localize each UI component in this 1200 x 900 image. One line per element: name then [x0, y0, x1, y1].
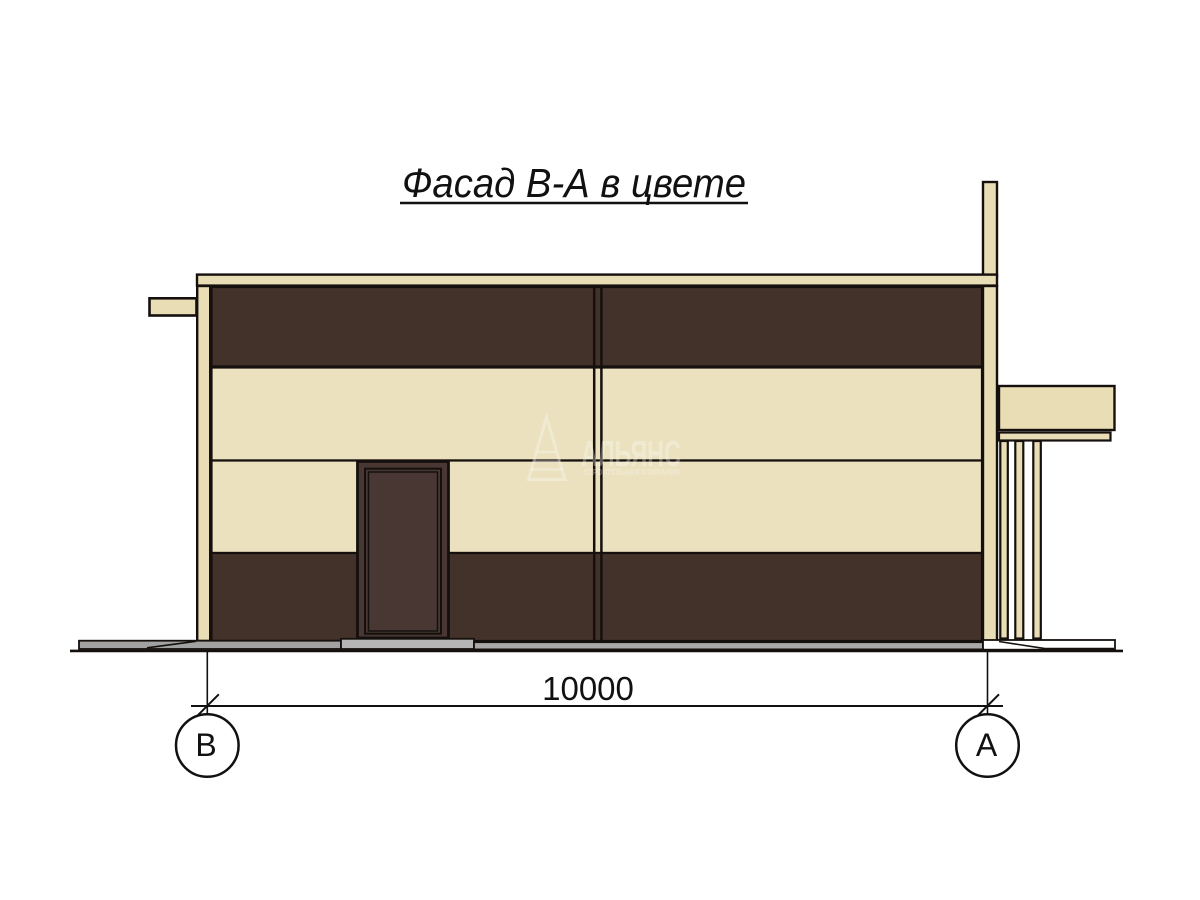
svg-text:СТРОИТЕЛЬНАЯ КОМПАНИЯ: СТРОИТЕЛЬНАЯ КОМПАНИЯ — [584, 468, 680, 477]
svg-text:В: В — [195, 727, 216, 763]
svg-text:Фасад В-А в цвете: Фасад В-А в цвете — [402, 160, 746, 206]
svg-text:10000: 10000 — [542, 670, 634, 707]
svg-text:А: А — [976, 727, 998, 763]
